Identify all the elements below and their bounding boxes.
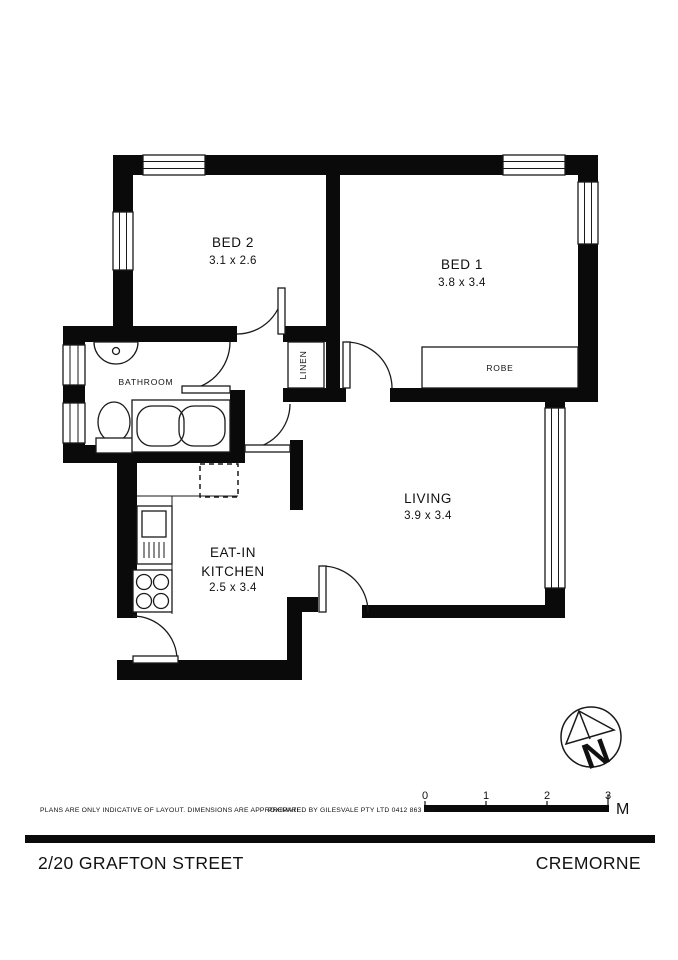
window-bed2-left [113,212,133,270]
scale-tick-2: 2 [544,790,550,802]
door-arc-entry [133,616,177,660]
label-linen: LINEN [298,350,308,379]
window-living-right [545,408,565,588]
door-leaf-hall [245,445,290,452]
footer-rule [25,835,655,843]
scale-bar-line [424,805,609,812]
label-bathroom: BATHROOM [119,377,174,387]
label-bed2: BED 2 [212,235,254,250]
address-text: 2/20 GRAFTON STREET [38,853,244,873]
door-arc-bed1 [346,342,392,388]
door-arc-hall [245,404,290,449]
wall-divider-beds [326,175,340,390]
label-kitchen-line2: KITCHEN [201,564,264,579]
dims-kitchen: 2.5 x 3.4 [209,582,257,594]
window-bed2-top [143,155,205,175]
wall-hall-living [290,440,303,510]
wall-bed2-bottom-left [63,326,237,342]
window-bed1-right [578,182,598,244]
scale-tick-0: 0 [422,790,428,802]
scale-tick-1: 1 [483,790,489,802]
wall-linen-bottom-jamb [283,388,346,402]
disclaimer-text: PLANS ARE ONLY INDICATIVE OF LAYOUT. DIM… [40,807,303,814]
bathroom-basin [94,342,138,364]
window-bathroom-2 [63,403,85,443]
door-arc-bed2 [237,288,283,334]
footer: PLANS ARE ONLY INDICATIVE OF LAYOUT. DIM… [25,807,655,873]
wall-living-right-top [545,388,565,408]
dims-bed1: 3.8 x 3.4 [438,277,486,289]
window-bed1-top [503,155,565,175]
door-arc-living [322,566,368,612]
dims-living: 3.9 x 3.4 [404,510,452,522]
door-leaf-bathroom [182,386,230,393]
north-compass: N [561,707,621,777]
dims-bed2: 3.1 x 2.6 [209,255,257,267]
wall-bed1-bottom [390,388,598,402]
toilet-cistern [96,438,133,453]
label-robe: ROBE [486,363,513,373]
floorplan-svg: BED 2 3.1 x 2.6 BED 1 3.8 x 3.4 BATHROOM… [0,0,678,960]
label-living: LIVING [404,491,452,506]
wall-living-right-bottom [545,588,565,618]
label-kitchen-line1: EAT-IN [210,545,256,560]
window-bathroom-1 [63,345,85,385]
wall-bed2-bottom-right [283,326,326,342]
door-leaf-entry [133,656,178,663]
wall-kitchen-living-jamb [302,597,318,612]
wall-living-bottom [362,605,565,618]
toilet-bowl [98,402,130,442]
prepared-by-text: PREPARED BY GILESVALE PTY LTD 0412 863 8… [268,807,436,814]
fridge-space [200,464,238,497]
compass-north-letter: N [577,730,615,777]
suburb-text: CREMORNE [536,853,641,873]
door-leaf-living [319,566,326,612]
scale-unit: M [616,801,629,818]
door-leaf-bed1 [343,342,350,388]
label-bed1: BED 1 [441,257,483,272]
scale-bar: 0 1 2 3 M [422,790,629,818]
wall-kitchen-living [287,597,302,680]
door-arc-bathroom [182,342,230,390]
floorplan-page: BED 2 3.1 x 2.6 BED 1 3.8 x 3.4 BATHROOM… [0,0,678,960]
door-leaf-bed2 [278,288,285,334]
bathtub-outer [132,400,230,452]
